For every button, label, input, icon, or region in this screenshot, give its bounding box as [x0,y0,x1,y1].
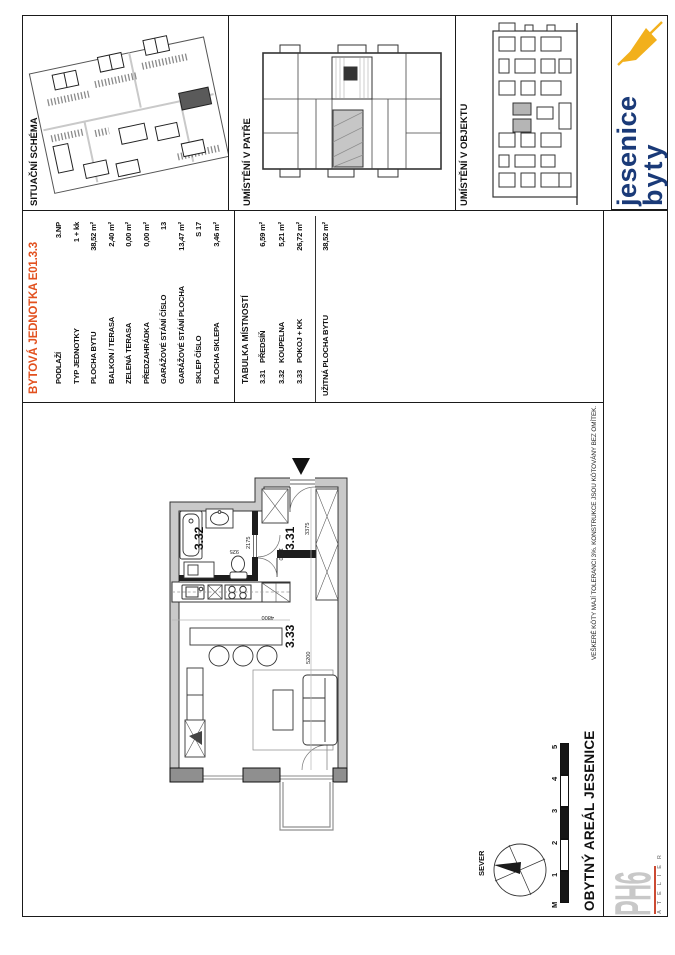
dim-925: 925 [230,548,239,554]
divider-top-band [22,210,668,211]
floor-location-drawing [228,15,455,210]
studio-logo-rule [654,866,656,914]
scale-tick-4: 4 [550,771,559,781]
room-row-total: UŽITNÁ PLOCHA BYTU38,52 m² [321,216,330,400]
dim-1750: 1750 [277,548,283,560]
unit-row-garaz-cislo: GARÁŽOVÉ STÁNÍ ČÍSLO13 [159,216,168,400]
dim-5200: 5200 [306,652,312,664]
divider-unit-table [234,210,235,402]
room-row-331: 3.31PŘEDSÍŇ6,59 m² [258,216,267,400]
dim-3375: 3375 [305,523,311,535]
scale-tick-3: 3 [550,803,559,813]
unit-row-garaz-plocha: GARÁŽOVÉ STÁNÍ PLOCHA13,47 m² [177,216,186,400]
room-table-title: TABULKA MÍSTNOSTÍ [240,216,250,400]
room-label-hall: 3.31 [283,526,297,550]
sofa [303,675,337,745]
balcony-door-opening [280,773,333,783]
unit-title: BYTOVÁ JEDNOTKA E01.3.3 [28,216,40,400]
washbasin [206,509,233,528]
tolerance-note: VEŠKERÉ KÓTY MAJÍ TOLERANCI 3%. KONSTRUK… [591,412,598,660]
room-row-333: 3.33POKOJ + KK26,72 m² [295,216,304,400]
hall-wardrobe [316,489,338,600]
dim-2175: 2175 [246,537,252,549]
toilet [230,556,247,579]
unit-row-typ: TYP JEDNOTKY1 + kk [72,216,81,400]
room-label-living: 3.33 [283,624,297,648]
unit-row-sklep-plocha: PLOCHA SKLEPA3,46 m² [212,216,221,400]
window-left [203,773,243,783]
unit-row-balkon: BALKON / TERASA2,40 m² [107,216,116,400]
balcony-door-swing [302,745,327,770]
logo-word-jesenice: jesenice [615,64,640,206]
site-highlighted-building [179,87,212,110]
scale-unit-label: M [550,898,559,908]
project-title: OBYTNÝ AREÁL JESENICE [582,751,597,911]
scale-tick-1: 1 [550,867,559,877]
scale-tick-5: 5 [550,739,559,749]
north-label: SEVER [477,842,486,876]
building-elevation-drawing [455,15,610,210]
dim-4800: 4800 [262,614,274,620]
entrance-arrow [292,458,310,475]
tv-stand [185,720,205,757]
scale-tick-2: 2 [550,835,559,845]
site-plan-drawing [22,15,228,210]
drawing-sheet: { "panels": { "site": { "label": "SITUAČ… [0,0,675,955]
unit-row-podlazi: PODLAŽÍ3.NP [54,216,63,400]
unit-row-sklep-cislo: SKLEP ČÍSLOS 17 [194,216,203,400]
unit-row-zelena: ZELENÁ TERASA0,00 m² [124,216,133,400]
coffee-table [273,690,293,730]
table-total-rule [315,216,316,402]
living-wardrobe [187,668,203,722]
floor-highlighted-unit [333,110,363,167]
north-compass [490,840,550,900]
washing-machine [184,562,214,578]
logo-word-byty: byty [641,64,666,206]
unit-row-predzahradka: PŘEDZAHRÁDKA0,00 m² [142,216,151,400]
divider-right-column [603,210,604,917]
dining-table [190,628,282,666]
balcony [280,782,333,830]
logo-bird-icon [613,18,665,66]
entrance-gap [290,477,315,488]
room-row-332: 3.32KOUPELNA5,21 m² [277,216,286,400]
unit-row-plocha: PLOCHA BYTU38,52 m² [89,216,98,400]
north-needle [494,862,521,874]
entry-closet [262,489,288,523]
studio-sublabel: A T E L I E R [657,866,663,914]
room-label-bath: 3.32 [192,526,206,550]
